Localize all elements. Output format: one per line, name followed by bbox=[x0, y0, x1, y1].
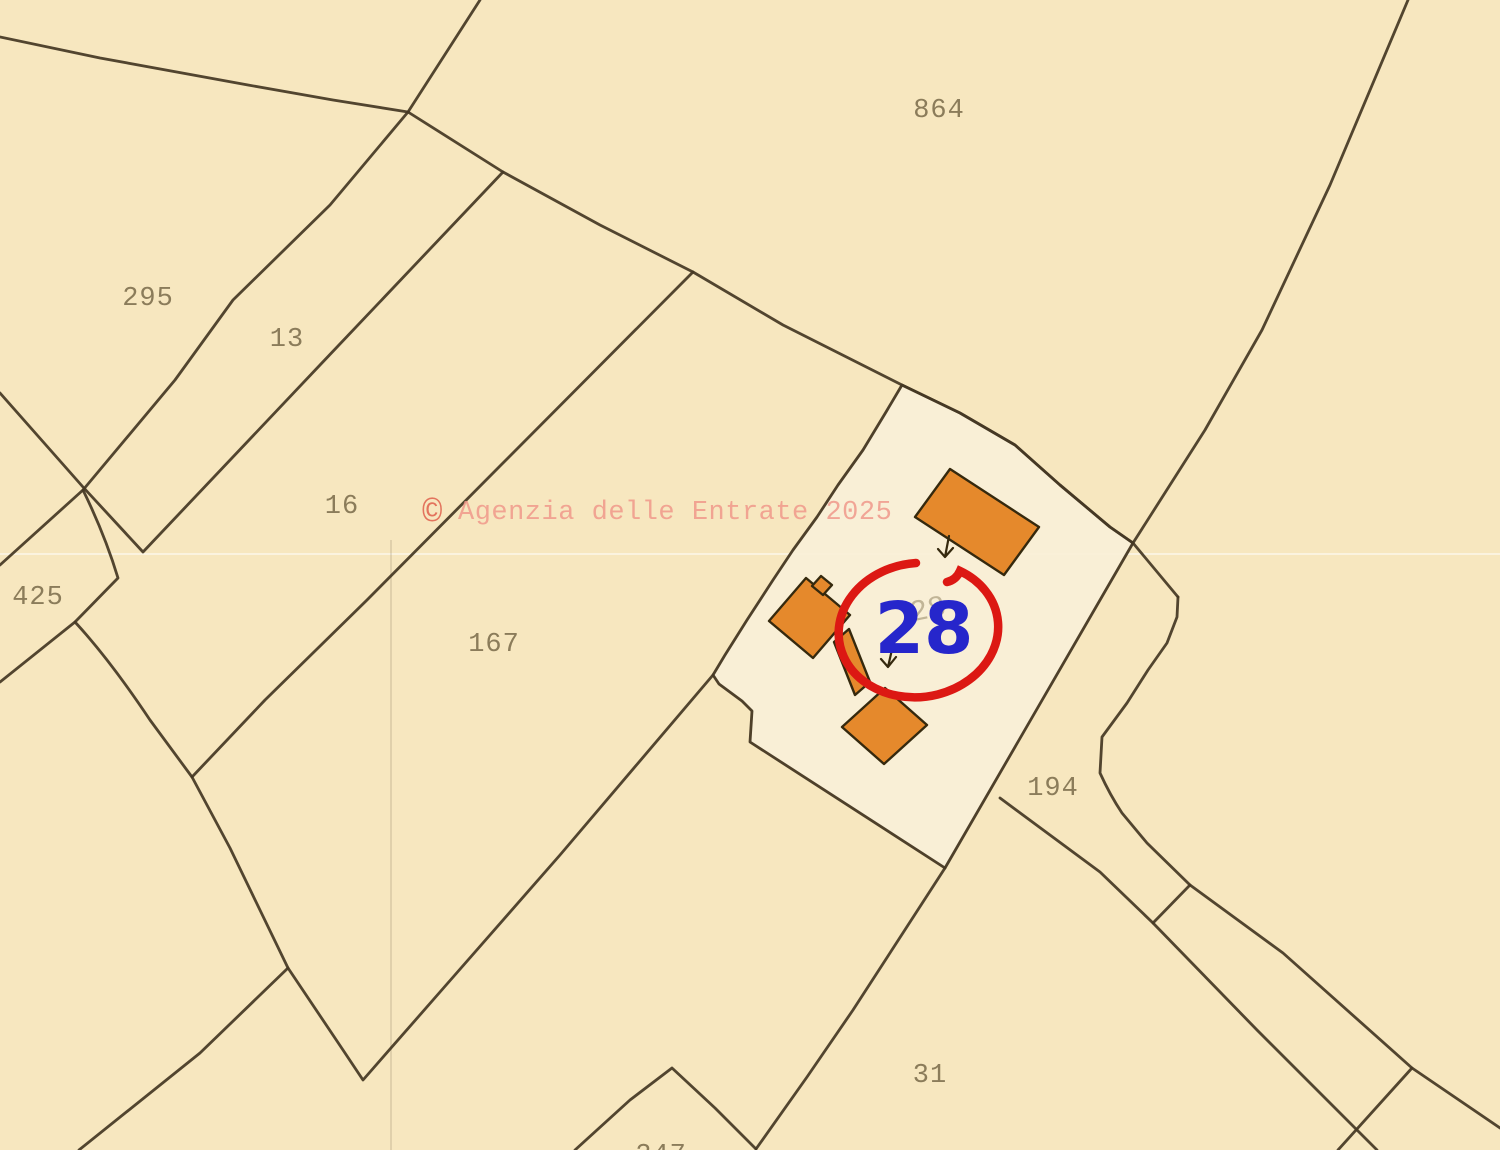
parcel-label-31: 31 bbox=[913, 1061, 947, 1091]
cadastral-map[interactable]: © Agenzia delle Entrate 2025 864 295 13 … bbox=[0, 0, 1500, 1150]
map-canvas[interactable]: © Agenzia delle Entrate 2025 864 295 13 … bbox=[0, 0, 1500, 1150]
parcel-label-167: 167 bbox=[468, 630, 520, 660]
watermark-label: Agenzia delle Entrate 2025 bbox=[458, 498, 892, 528]
watermark-copyright-icon: © bbox=[422, 495, 442, 533]
parcel-label-295: 295 bbox=[122, 284, 174, 314]
parcel-label-864: 864 bbox=[913, 96, 965, 126]
parcel-label-425: 425 bbox=[12, 583, 64, 613]
parcel-label-16: 16 bbox=[325, 492, 359, 522]
watermark: © Agenzia delle Entrate 2025 bbox=[422, 495, 892, 533]
highlight-number: 28 bbox=[875, 587, 974, 670]
parcel-label-194: 194 bbox=[1027, 774, 1079, 804]
map-background bbox=[0, 0, 1500, 1150]
parcel-label-13: 13 bbox=[270, 325, 304, 355]
parcel-label-247: 247 bbox=[635, 1141, 687, 1150]
